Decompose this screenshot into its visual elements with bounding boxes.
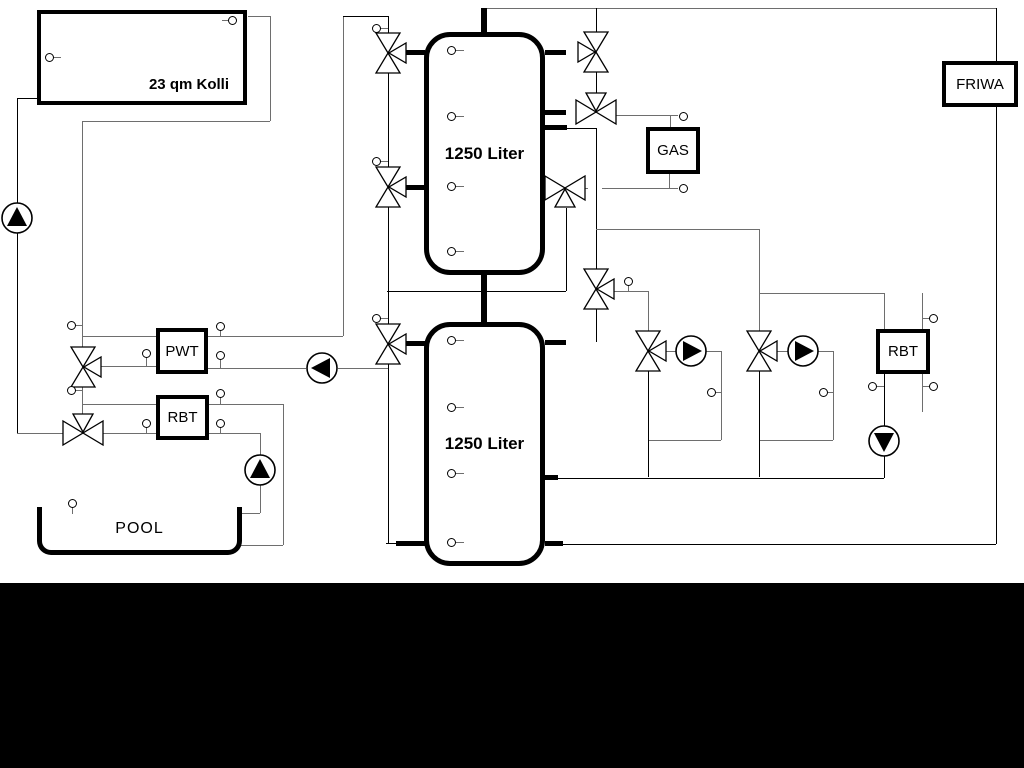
- temp-sensor-icon: [447, 46, 456, 55]
- pipe: [248, 16, 270, 17]
- pipe: [648, 291, 649, 331]
- pipe: [563, 544, 996, 545]
- temp-sensor-icon: [216, 322, 225, 331]
- pipe: [648, 440, 721, 441]
- pipe: [669, 174, 670, 188]
- friwa-label: FRIWA: [956, 76, 1004, 93]
- pump-up-icon: [243, 453, 277, 487]
- tank-pipe: [481, 274, 487, 324]
- pipe: [208, 336, 343, 337]
- pipe: [760, 440, 833, 441]
- temp-sensor-icon: [447, 112, 456, 121]
- temp-sensor-icon: [868, 382, 877, 391]
- pipe: [17, 98, 37, 99]
- temp-sensor-icon: [372, 314, 381, 323]
- pipe: [240, 513, 260, 514]
- pump-right-icon: [786, 334, 820, 368]
- sensor-stem: [72, 507, 73, 514]
- pipe: [343, 16, 388, 17]
- pipe: [721, 351, 722, 440]
- buffer-tank-bottom: 1250 Liter: [424, 322, 545, 566]
- sensor-stem: [380, 28, 388, 29]
- pipe: [270, 16, 271, 121]
- tank-stub: [396, 541, 425, 546]
- pipe: [996, 8, 997, 61]
- three-way-valve-icon: [61, 345, 105, 389]
- temp-sensor-icon: [624, 277, 633, 286]
- tank-stub: [545, 475, 558, 480]
- pipe: [82, 121, 83, 347]
- pipe: [17, 232, 18, 433]
- pool-label: POOL: [115, 520, 163, 538]
- pipe: [884, 293, 885, 329]
- pipe: [209, 404, 283, 405]
- temp-sensor-icon: [929, 382, 938, 391]
- temp-sensor-icon: [216, 419, 225, 428]
- tank-stub: [545, 110, 566, 115]
- temp-sensor-icon: [447, 538, 456, 547]
- pipe: [388, 364, 389, 543]
- sensor-stem: [220, 397, 221, 404]
- pipe: [387, 291, 566, 292]
- temp-sensor-icon: [447, 336, 456, 345]
- pipe: [343, 16, 344, 336]
- pump-down-icon: [867, 424, 901, 458]
- pipe: [388, 207, 389, 324]
- sensor-stem: [53, 57, 61, 58]
- sensor-stem: [455, 473, 464, 474]
- temp-sensor-icon: [216, 351, 225, 360]
- three-way-valve-icon: [574, 30, 618, 74]
- pipe: [596, 229, 759, 230]
- pipe: [759, 371, 760, 477]
- pipe: [612, 115, 678, 116]
- temp-sensor-icon: [447, 469, 456, 478]
- pipe: [558, 478, 884, 479]
- pipe: [602, 188, 678, 189]
- pipe: [101, 433, 156, 434]
- temp-sensor-icon: [929, 314, 938, 323]
- pipe: [260, 485, 261, 513]
- temp-sensor-icon: [67, 321, 76, 330]
- pipe: [388, 73, 389, 167]
- tank-stub: [545, 125, 567, 130]
- pipe: [83, 404, 156, 405]
- pipe: [614, 291, 648, 292]
- pipe: [596, 309, 597, 342]
- temp-sensor-icon: [372, 24, 381, 33]
- sensor-stem: [380, 161, 388, 162]
- bottom-black-bar: [0, 583, 1024, 768]
- temp-sensor-icon: [372, 157, 381, 166]
- collector-label: 23 qm Kolli: [149, 76, 229, 93]
- temp-sensor-icon: [707, 388, 716, 397]
- gas-boiler-label: GAS: [657, 142, 689, 159]
- pipe: [596, 8, 597, 32]
- pipe: [648, 371, 649, 477]
- pipe: [338, 368, 388, 369]
- sensor-stem: [876, 386, 884, 387]
- temp-sensor-icon: [45, 53, 54, 62]
- rbt-heating-unit: RBT: [876, 329, 930, 374]
- sensor-stem: [455, 186, 464, 187]
- pump-up-icon: [0, 201, 34, 235]
- sensor-stem: [75, 325, 83, 326]
- pipe: [17, 98, 18, 204]
- pipe: [101, 366, 156, 367]
- pipe: [996, 107, 997, 544]
- pipe: [209, 433, 260, 434]
- sensor-stem: [455, 407, 464, 408]
- temp-sensor-icon: [142, 349, 151, 358]
- gas-boiler: GAS: [646, 127, 700, 174]
- temp-sensor-icon: [67, 386, 76, 395]
- temp-sensor-icon: [228, 16, 237, 25]
- tank-stub: [545, 340, 566, 345]
- buffer-tank-top: 1250 Liter: [424, 32, 545, 275]
- sensor-stem: [455, 116, 464, 117]
- friwa-station: FRIWA: [942, 61, 1018, 107]
- three-way-valve-icon: [366, 31, 410, 75]
- temp-sensor-icon: [68, 499, 77, 508]
- pipe: [566, 208, 567, 291]
- sensor-stem: [455, 340, 464, 341]
- tank-stub: [545, 541, 563, 546]
- sensor-stem: [220, 359, 221, 368]
- pipe: [484, 8, 996, 9]
- sensor-stem: [146, 357, 147, 366]
- rbt-pool-label: RBT: [168, 409, 198, 426]
- three-way-valve-icon: [366, 165, 410, 209]
- pwt-heat-exchanger: PWT: [156, 328, 208, 374]
- hydraulic-schematic: 23 qm Kolli 1250 Liter 1250 Liter GAS FR…: [0, 0, 1024, 768]
- solar-collector: 23 qm Kolli: [37, 10, 247, 105]
- sensor-stem: [455, 542, 464, 543]
- tank-pipe: [481, 8, 487, 34]
- sensor-stem: [455, 50, 464, 51]
- pool-basin: POOL: [37, 507, 242, 555]
- pump-right-icon: [674, 334, 708, 368]
- pipe: [833, 351, 834, 440]
- temp-sensor-icon: [679, 112, 688, 121]
- pipe: [240, 545, 283, 546]
- pipe: [670, 115, 671, 127]
- three-way-valve-icon: [626, 329, 670, 373]
- temp-sensor-icon: [216, 389, 225, 398]
- temp-sensor-icon: [447, 403, 456, 412]
- three-way-valve-icon: [61, 411, 105, 455]
- pipe: [596, 128, 597, 269]
- three-way-valve-icon: [737, 329, 781, 373]
- three-way-valve-icon: [543, 166, 587, 210]
- pipe: [884, 374, 885, 426]
- three-way-valve-icon: [366, 322, 410, 366]
- pipe: [208, 368, 306, 369]
- pipe: [83, 336, 156, 337]
- pwt-label: PWT: [165, 343, 198, 360]
- pipe: [17, 433, 65, 434]
- pipe: [759, 293, 884, 294]
- temp-sensor-icon: [142, 419, 151, 428]
- tank-bottom-label: 1250 Liter: [445, 434, 524, 454]
- three-way-valve-icon: [574, 267, 618, 311]
- three-way-valve-icon: [574, 90, 618, 134]
- sensor-stem: [455, 251, 464, 252]
- temp-sensor-icon: [447, 247, 456, 256]
- tank-stub: [545, 50, 566, 55]
- pump-left-icon: [305, 351, 339, 385]
- temp-sensor-icon: [819, 388, 828, 397]
- sensor-stem: [75, 390, 83, 391]
- rbt-pool-heat-exchanger: RBT: [156, 395, 209, 440]
- sensor-stem: [380, 318, 388, 319]
- pipe: [260, 433, 261, 455]
- pipe: [283, 404, 284, 545]
- rbt-heating-label: RBT: [888, 343, 918, 360]
- pipe: [884, 456, 885, 478]
- temp-sensor-icon: [447, 182, 456, 191]
- tank-top-label: 1250 Liter: [445, 144, 524, 164]
- pipe: [759, 229, 760, 331]
- temp-sensor-icon: [679, 184, 688, 193]
- pipe: [82, 121, 270, 122]
